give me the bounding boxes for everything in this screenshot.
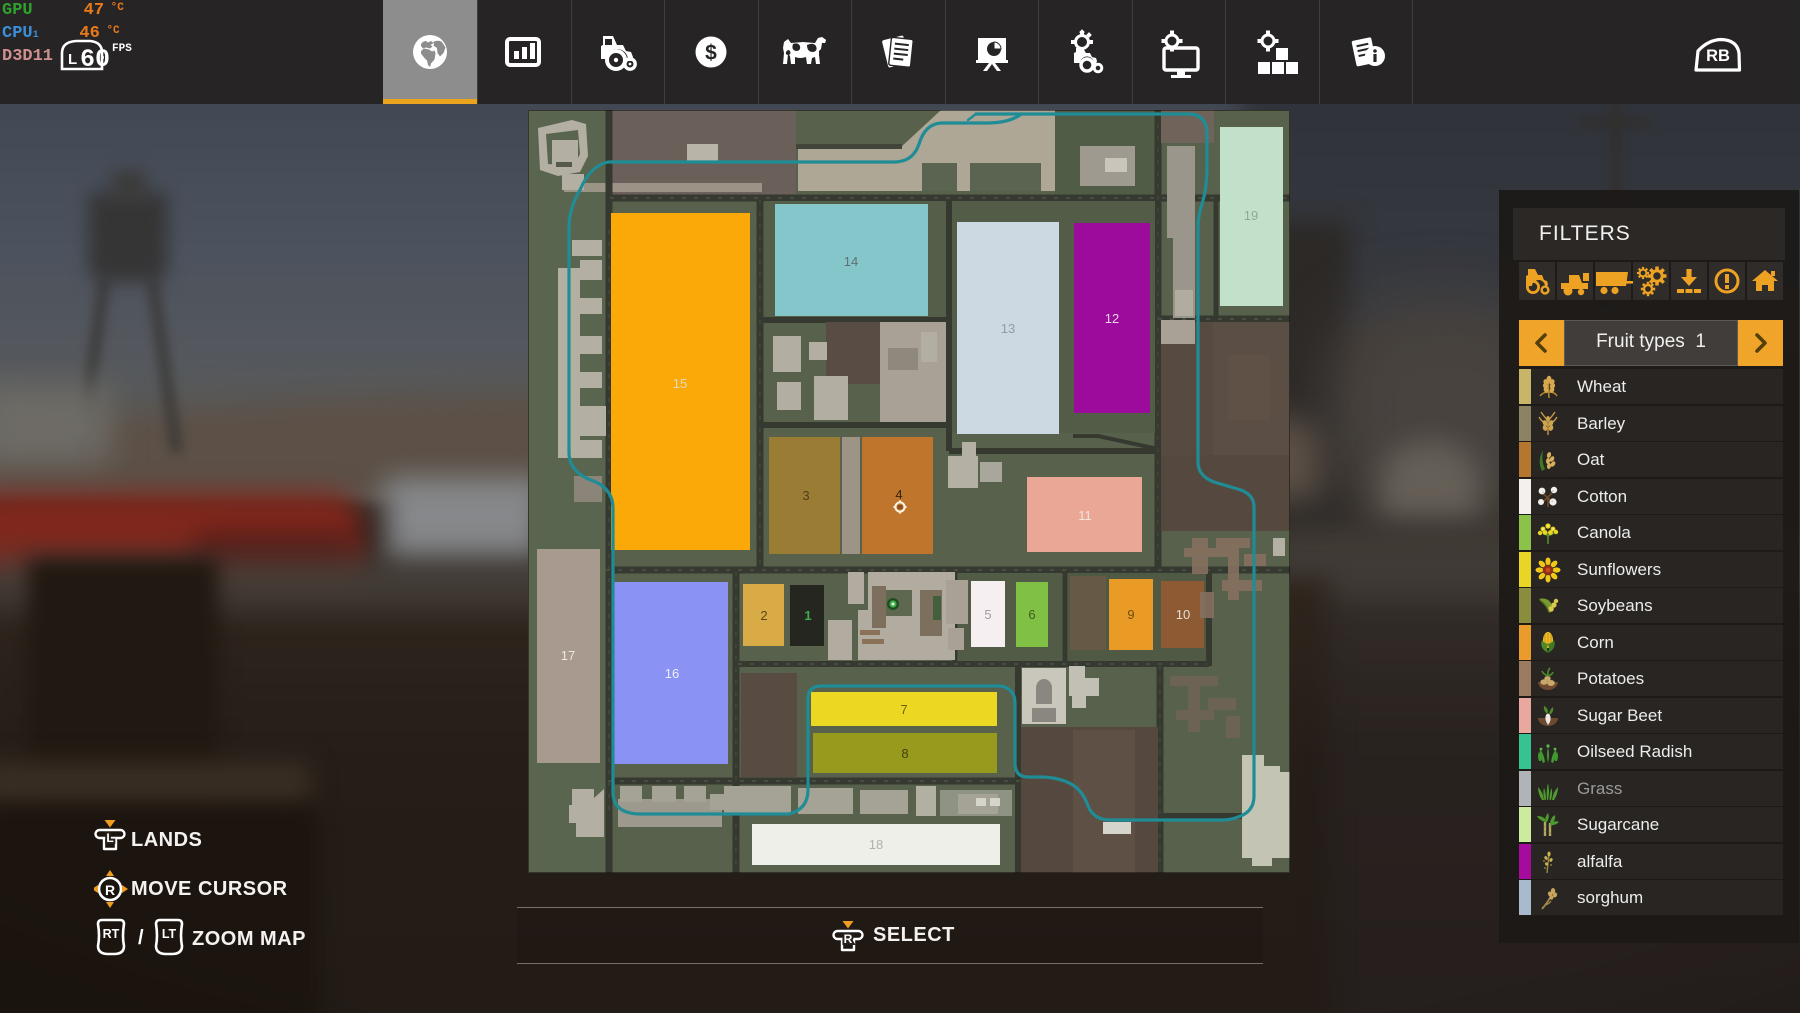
svg-text:L: L — [68, 51, 77, 68]
svg-text:4: 4 — [895, 487, 902, 502]
svg-text:6: 6 — [1028, 607, 1035, 622]
svg-text:16: 16 — [665, 666, 679, 681]
svg-text:2: 2 — [760, 608, 767, 623]
svg-text:19: 19 — [1244, 208, 1258, 223]
svg-text:RB: RB — [1706, 47, 1730, 65]
svg-text:R: R — [105, 882, 115, 898]
svg-text:13: 13 — [1001, 321, 1015, 336]
svg-text:R: R — [844, 932, 853, 946]
svg-text:/: / — [138, 927, 144, 949]
svg-text:7: 7 — [900, 702, 907, 717]
svg-text:11: 11 — [1078, 508, 1092, 523]
svg-text:LT: LT — [162, 927, 177, 941]
svg-text:$: $ — [705, 42, 717, 65]
svg-text:FPS: FPS — [112, 43, 132, 55]
svg-text:15: 15 — [673, 376, 687, 391]
svg-text:14: 14 — [844, 254, 858, 269]
svg-text:60: 60 — [80, 45, 110, 74]
svg-text:12: 12 — [1105, 311, 1119, 326]
svg-text:8: 8 — [901, 746, 908, 761]
svg-text:5: 5 — [984, 607, 991, 622]
svg-text:3: 3 — [802, 488, 809, 503]
svg-text:L: L — [106, 831, 113, 845]
svg-text:17: 17 — [561, 648, 575, 663]
svg-text:10: 10 — [1176, 607, 1190, 622]
svg-text:9: 9 — [1127, 607, 1134, 622]
svg-text:RT: RT — [103, 927, 120, 941]
svg-text:18: 18 — [869, 837, 883, 852]
svg-text:1: 1 — [804, 608, 811, 623]
